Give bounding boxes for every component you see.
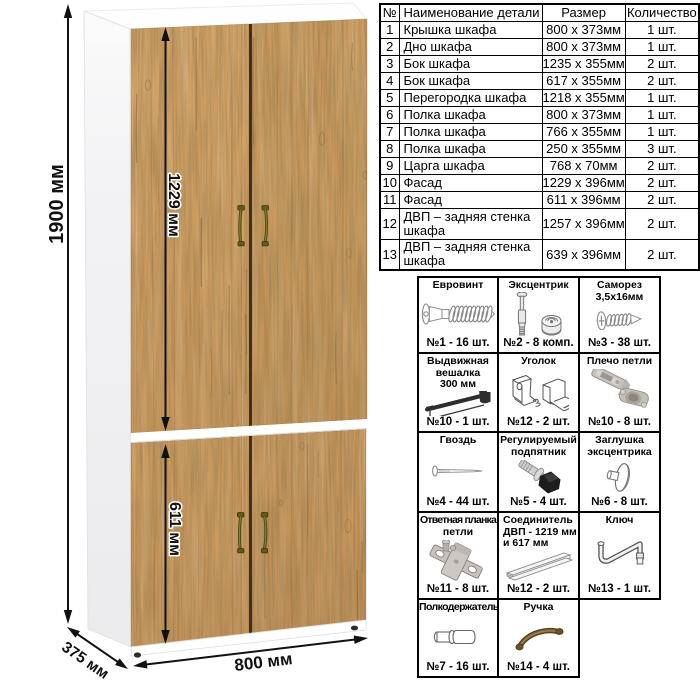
svg-text:375 мм: 375 мм: [58, 639, 111, 683]
svg-text:611 мм: 611 мм: [166, 502, 183, 556]
svg-text:1229 мм: 1229 мм: [165, 173, 182, 237]
svg-text:1900 мм: 1900 мм: [46, 164, 68, 244]
